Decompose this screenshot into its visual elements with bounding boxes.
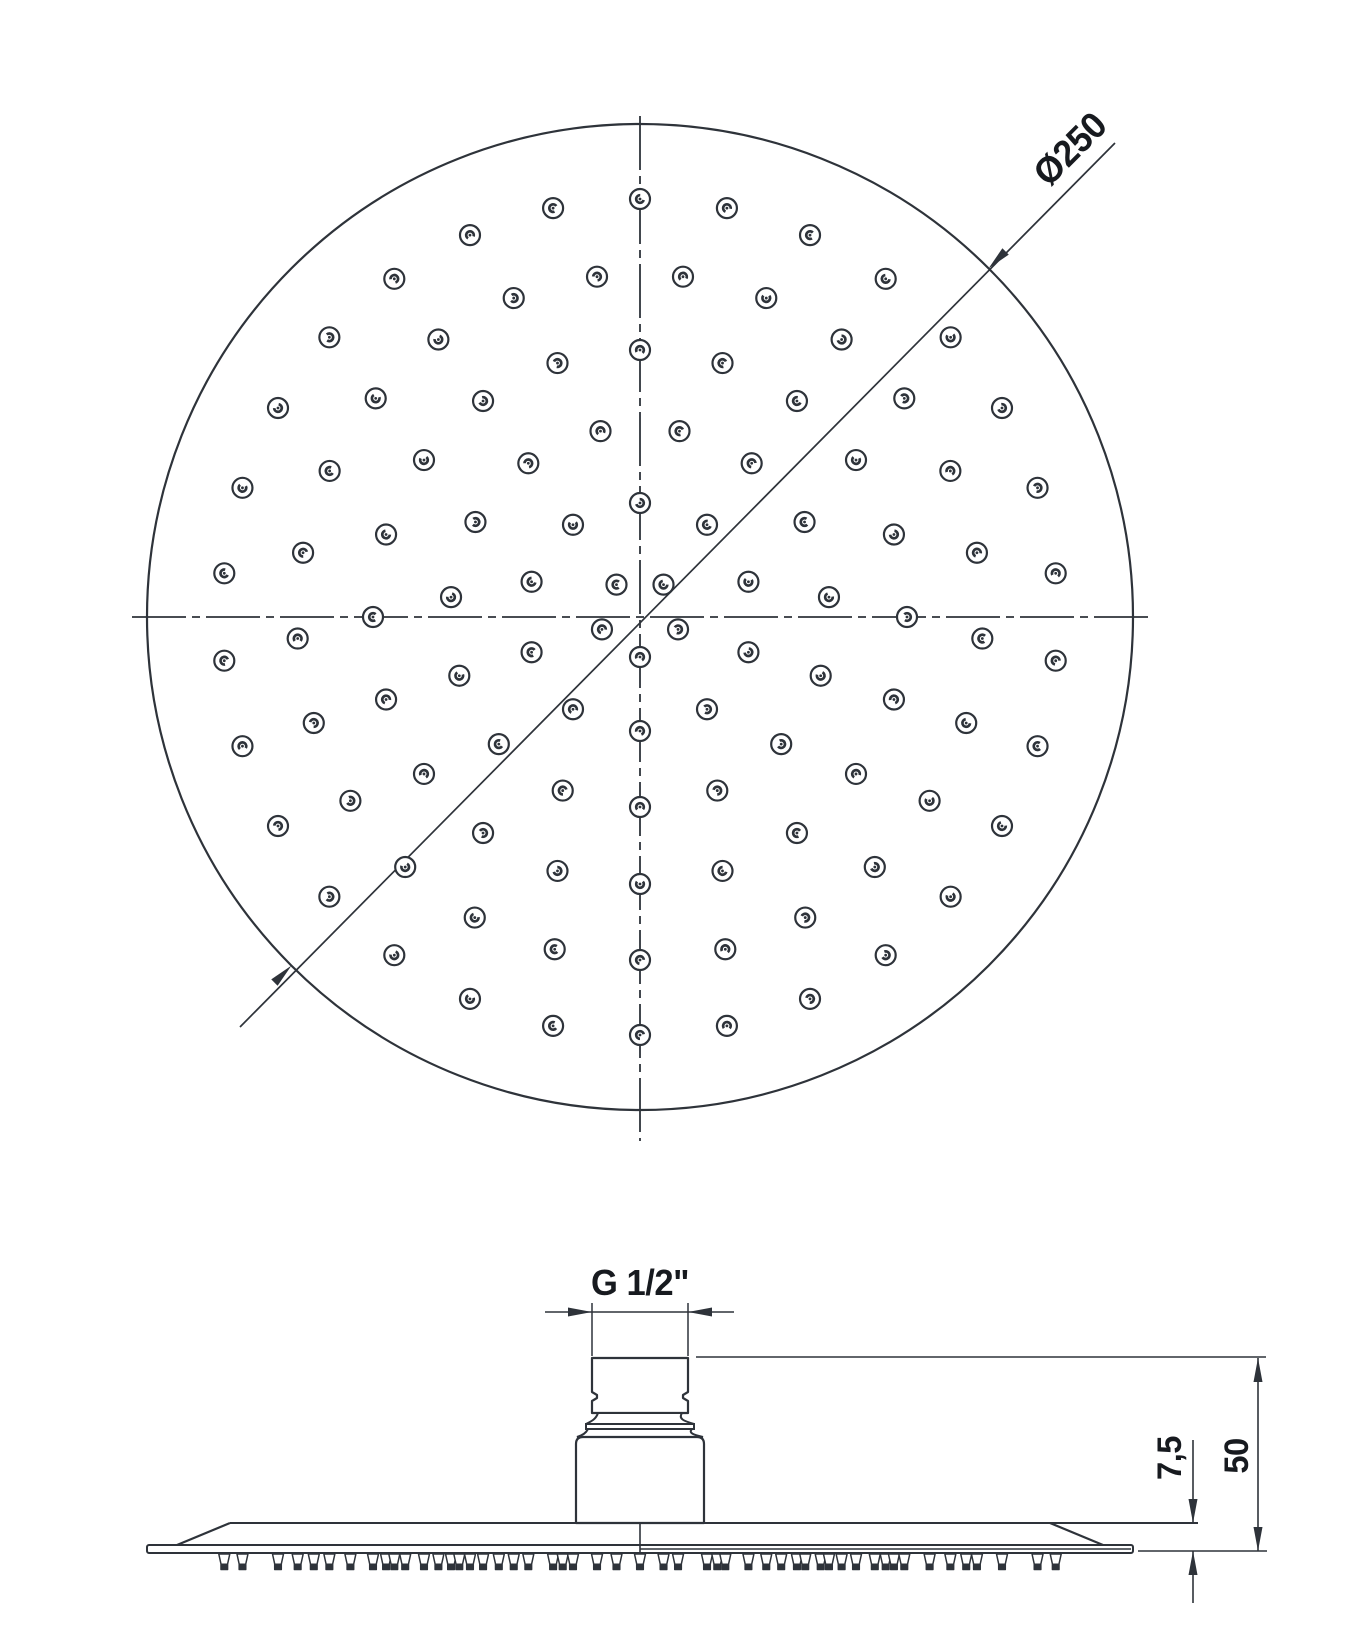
side-view-profile [576, 1358, 704, 1523]
shower-head-technical-drawing: Ø250 G 1/2" 7,5 50 [0, 0, 1370, 1645]
plate-thickness-dimension-label: 7,5 [1153, 1436, 1187, 1480]
plate-profile [147, 1523, 1198, 1553]
thread-size-dimension-label: G 1/2" [591, 1265, 689, 1301]
diagram-canvas [0, 0, 1370, 1645]
nozzle-nubs [219, 1554, 1061, 1570]
top-view-centerlines [132, 116, 1148, 1141]
head-height-dimension-label: 50 [1220, 1438, 1254, 1473]
